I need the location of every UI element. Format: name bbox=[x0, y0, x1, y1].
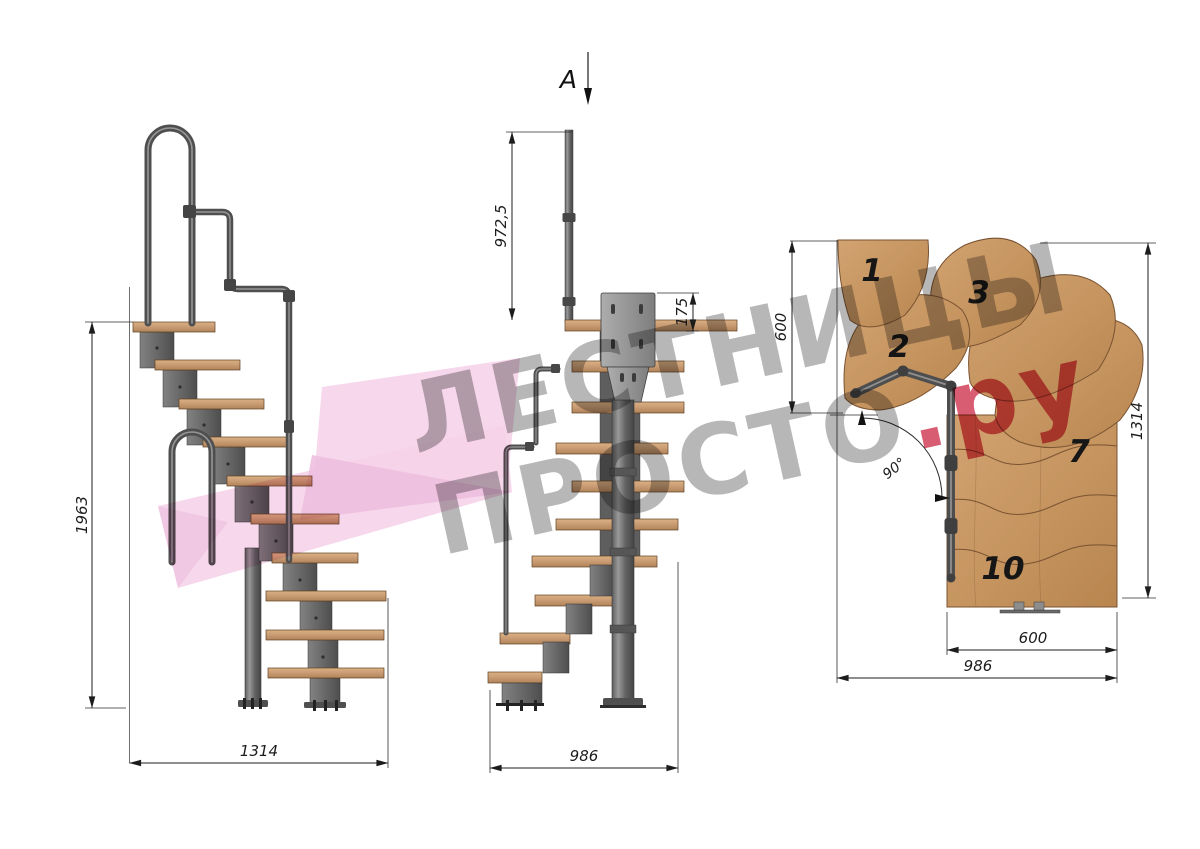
technical-drawing-canvas: 1963 1314 A bbox=[0, 0, 1200, 849]
front-handrail-post bbox=[563, 130, 576, 322]
dim-plan-width-label: 986 bbox=[964, 657, 993, 675]
dim-front-rail-label: 972,5 bbox=[492, 205, 510, 248]
tread-number-7: 7 bbox=[1068, 434, 1090, 470]
side-elevation-view: 1963 1314 bbox=[73, 128, 388, 768]
dim-side-width-label: 1314 bbox=[240, 742, 278, 760]
dim-plan-angle-label: 90° bbox=[880, 455, 909, 483]
plan-view: 1 2 3 7 10 90° bbox=[772, 238, 1156, 683]
staircase-drawing: 1963 1314 A bbox=[0, 0, 1200, 849]
side-extension-lines bbox=[85, 322, 388, 768]
section-cut-marker: A bbox=[558, 52, 592, 105]
section-letter: A bbox=[558, 65, 577, 94]
dim-front-plate-label: 175 bbox=[673, 298, 691, 327]
tread-number-3: 3 bbox=[968, 275, 990, 311]
tread-number-1: 1 bbox=[861, 253, 883, 289]
dim-plan-depth-label: 600 bbox=[772, 313, 790, 342]
dim-plan-tread-width-label: 600 bbox=[1019, 629, 1048, 647]
section-arrowhead-icon bbox=[584, 88, 592, 105]
front-left-rails bbox=[506, 364, 560, 633]
side-dimensions: 1963 1314 bbox=[73, 322, 388, 763]
front-elevation-view: A bbox=[488, 52, 737, 773]
tread-number-10: 10 bbox=[981, 551, 1024, 587]
dim-front-width-label: 986 bbox=[570, 747, 599, 765]
plan-angle-annotation: 90° bbox=[858, 410, 950, 502]
dim-plan-height-label: 1314 bbox=[1128, 402, 1146, 440]
dim-side-height-label: 1963 bbox=[73, 496, 91, 534]
tread-number-2: 2 bbox=[888, 329, 910, 365]
